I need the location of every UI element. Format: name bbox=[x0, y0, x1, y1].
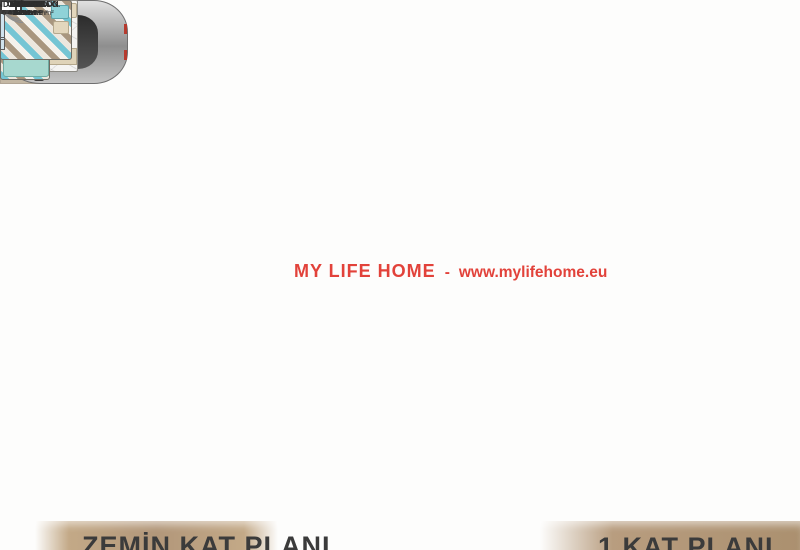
caption-first-floor: 1.KAT PLANI bbox=[598, 532, 774, 550]
floor-plan-sheet: SALON 34.4 m² 5.6 m² GARAJ 20.9 m² BANYO… bbox=[0, 0, 800, 550]
pillow bbox=[53, 21, 69, 34]
car-taillight bbox=[124, 50, 127, 60]
watermark-brand: MY LIFE HOME bbox=[294, 261, 436, 282]
room-label-oda2: ODA 11.2 m² bbox=[0, 0, 50, 18]
car-taillight bbox=[124, 24, 127, 34]
caption-ground-floor: ZEMİN KAT PLANI bbox=[82, 531, 330, 550]
watermark: MY LIFE HOME - www.mylifehome.eu bbox=[294, 261, 607, 282]
watermark-url: www.mylifehome.eu bbox=[459, 264, 607, 282]
watermark-separator: - bbox=[445, 264, 450, 282]
